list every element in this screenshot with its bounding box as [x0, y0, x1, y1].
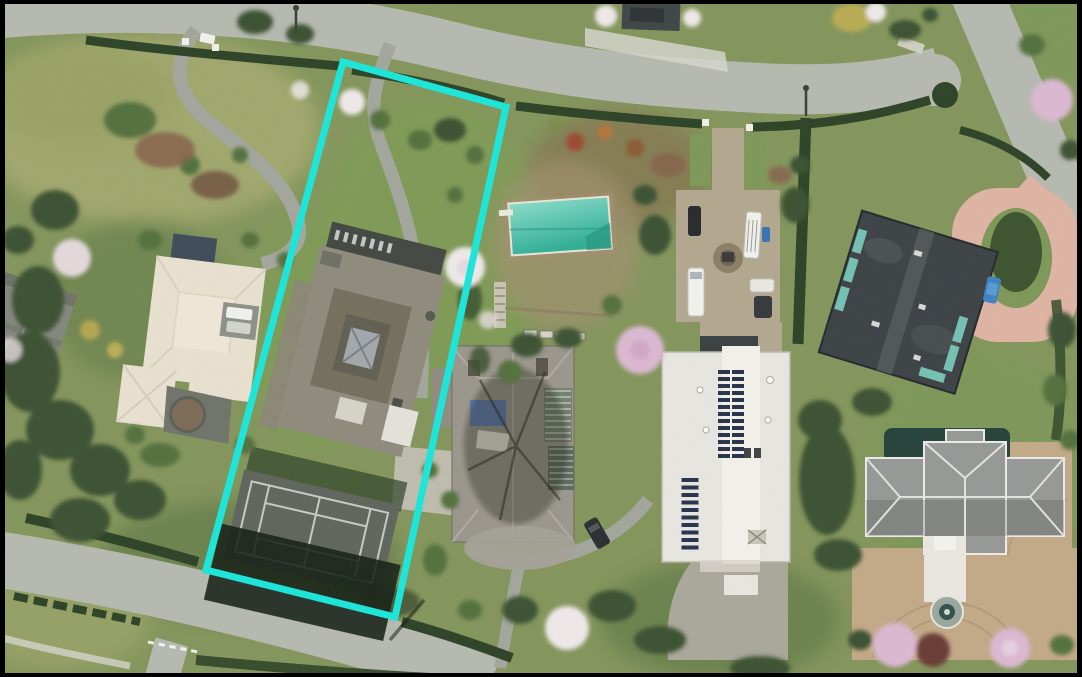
aerial-scene [0, 0, 1082, 677]
photo-grain [0, 0, 1082, 677]
aerial-photo [0, 0, 1082, 677]
